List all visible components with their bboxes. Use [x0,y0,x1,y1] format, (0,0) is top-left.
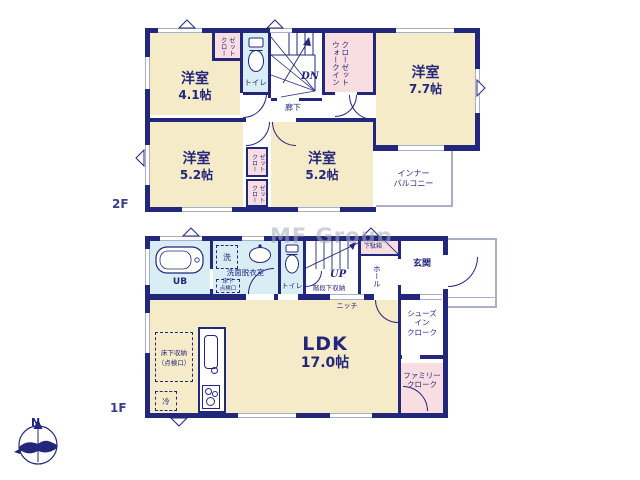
door-arc [246,122,270,146]
wall [303,241,306,294]
ldk-name: LDK [260,333,390,357]
unit-bath: UB [150,241,210,294]
compass-north: N [31,416,40,429]
compass-icon: N [8,412,70,474]
walk-in-closet-label: ウォークイン クローゼット [331,35,369,91]
stairs-dn-icon [271,33,322,98]
wall [325,92,335,95]
wall [268,33,271,98]
room-5-2r-size: 5.2帖 [271,168,373,183]
window-marker-icon [476,79,486,97]
window [145,313,150,353]
window [238,413,296,418]
niche-label: ニッチ [328,302,366,311]
wall [274,294,278,300]
floor-label-2f: 2F [112,197,129,211]
entrance-label: 玄関 [401,259,443,270]
entrance-door-arc [448,257,478,287]
corridor-label: 廊下 [270,103,316,113]
closet-2f-mid1: クロー ゼット [246,147,268,177]
floor-storage: 床下収納 （点検口） [155,332,193,382]
porch-step [448,297,495,298]
burner [212,391,218,397]
dn-label: DN [296,71,324,84]
toilet-icon [246,37,266,75]
window-marker-icon [170,417,188,427]
up-label: UP [324,269,352,282]
door-arc [335,95,357,117]
sliding-door [420,294,442,300]
kitchen-counter [198,327,226,413]
niche-window [330,294,364,300]
floor-label-1f: 1F [110,401,127,415]
window [145,57,150,89]
wall [296,118,376,122]
washer-box: 洗 [216,245,238,269]
wall [358,241,361,294]
room-5-2l-size: 5.2帖 [150,168,243,183]
closet-label: クロー ゼット [250,150,266,175]
window-marker-icon [266,19,284,29]
room-5-2l-name: 洋室 [150,151,243,169]
wall [398,294,420,300]
wall [364,294,374,300]
room-4-1-size: 4.1帖 [150,88,240,103]
wall [150,118,246,122]
room-5-2r-name: 洋室 [271,151,373,169]
floor-plan-canvas: MF Group クロー ゼット ウォ [0,0,640,480]
wall [210,241,213,269]
window [330,413,372,418]
stairs-2f [271,33,322,98]
window [145,145,150,185]
ldk-size: 17.0帖 [260,355,390,373]
floor-1f: UB 洗 洗面脱衣室 床下 点検口 トイレ [145,236,448,418]
toilet-icon [283,244,301,276]
window-marker-icon [182,227,200,237]
wall [150,294,246,300]
closet-2f-mid2: クロー ゼット [246,179,268,207]
wall [271,98,277,101]
burner [205,388,212,395]
room-4-1-name: 洋室 [150,71,240,89]
fridge-box: 冷 [155,391,177,411]
closet-label: クロー ゼット [219,34,241,60]
window [298,207,340,212]
door-opening [402,355,420,359]
toilet-label: トイレ [241,78,270,87]
inner-balcony-label: インナー バルコニー [376,169,451,189]
window [182,207,232,212]
window [396,28,454,33]
closet-label: クロー ゼット [250,182,266,206]
bathtub-icon [155,245,205,275]
hall-label: ホール [372,258,386,294]
kitchen-stove [202,385,220,409]
window [242,236,264,241]
burner [206,397,215,406]
shoes-cloak-label: シューズ イン クローク [401,309,443,337]
window-marker-icon [135,149,145,167]
walk-in-closet: ウォークイン クローゼット [325,33,373,92]
window [398,145,444,151]
window [145,249,150,285]
window-marker-icon [178,19,196,29]
wall [298,294,330,300]
room-7-7-size: 7.7帖 [376,82,475,97]
wall [278,241,281,294]
wall [322,33,325,95]
entrance-porch [448,238,497,308]
wall [398,294,401,413]
wall [398,285,401,294]
wall [398,241,401,259]
ub-label: UB [150,277,210,288]
door-arc [243,93,267,118]
room-7-7-name: 洋室 [376,65,475,83]
underfloor-hatch: 床下 点検口 [216,279,240,293]
floor-2f: クロー ゼット ウォークイン クローゼット [145,28,480,212]
wall [299,98,322,101]
watermark: MF Group [270,224,393,248]
closet-2f-top: クロー ゼット [212,33,240,61]
kitchen-sink [204,335,218,369]
